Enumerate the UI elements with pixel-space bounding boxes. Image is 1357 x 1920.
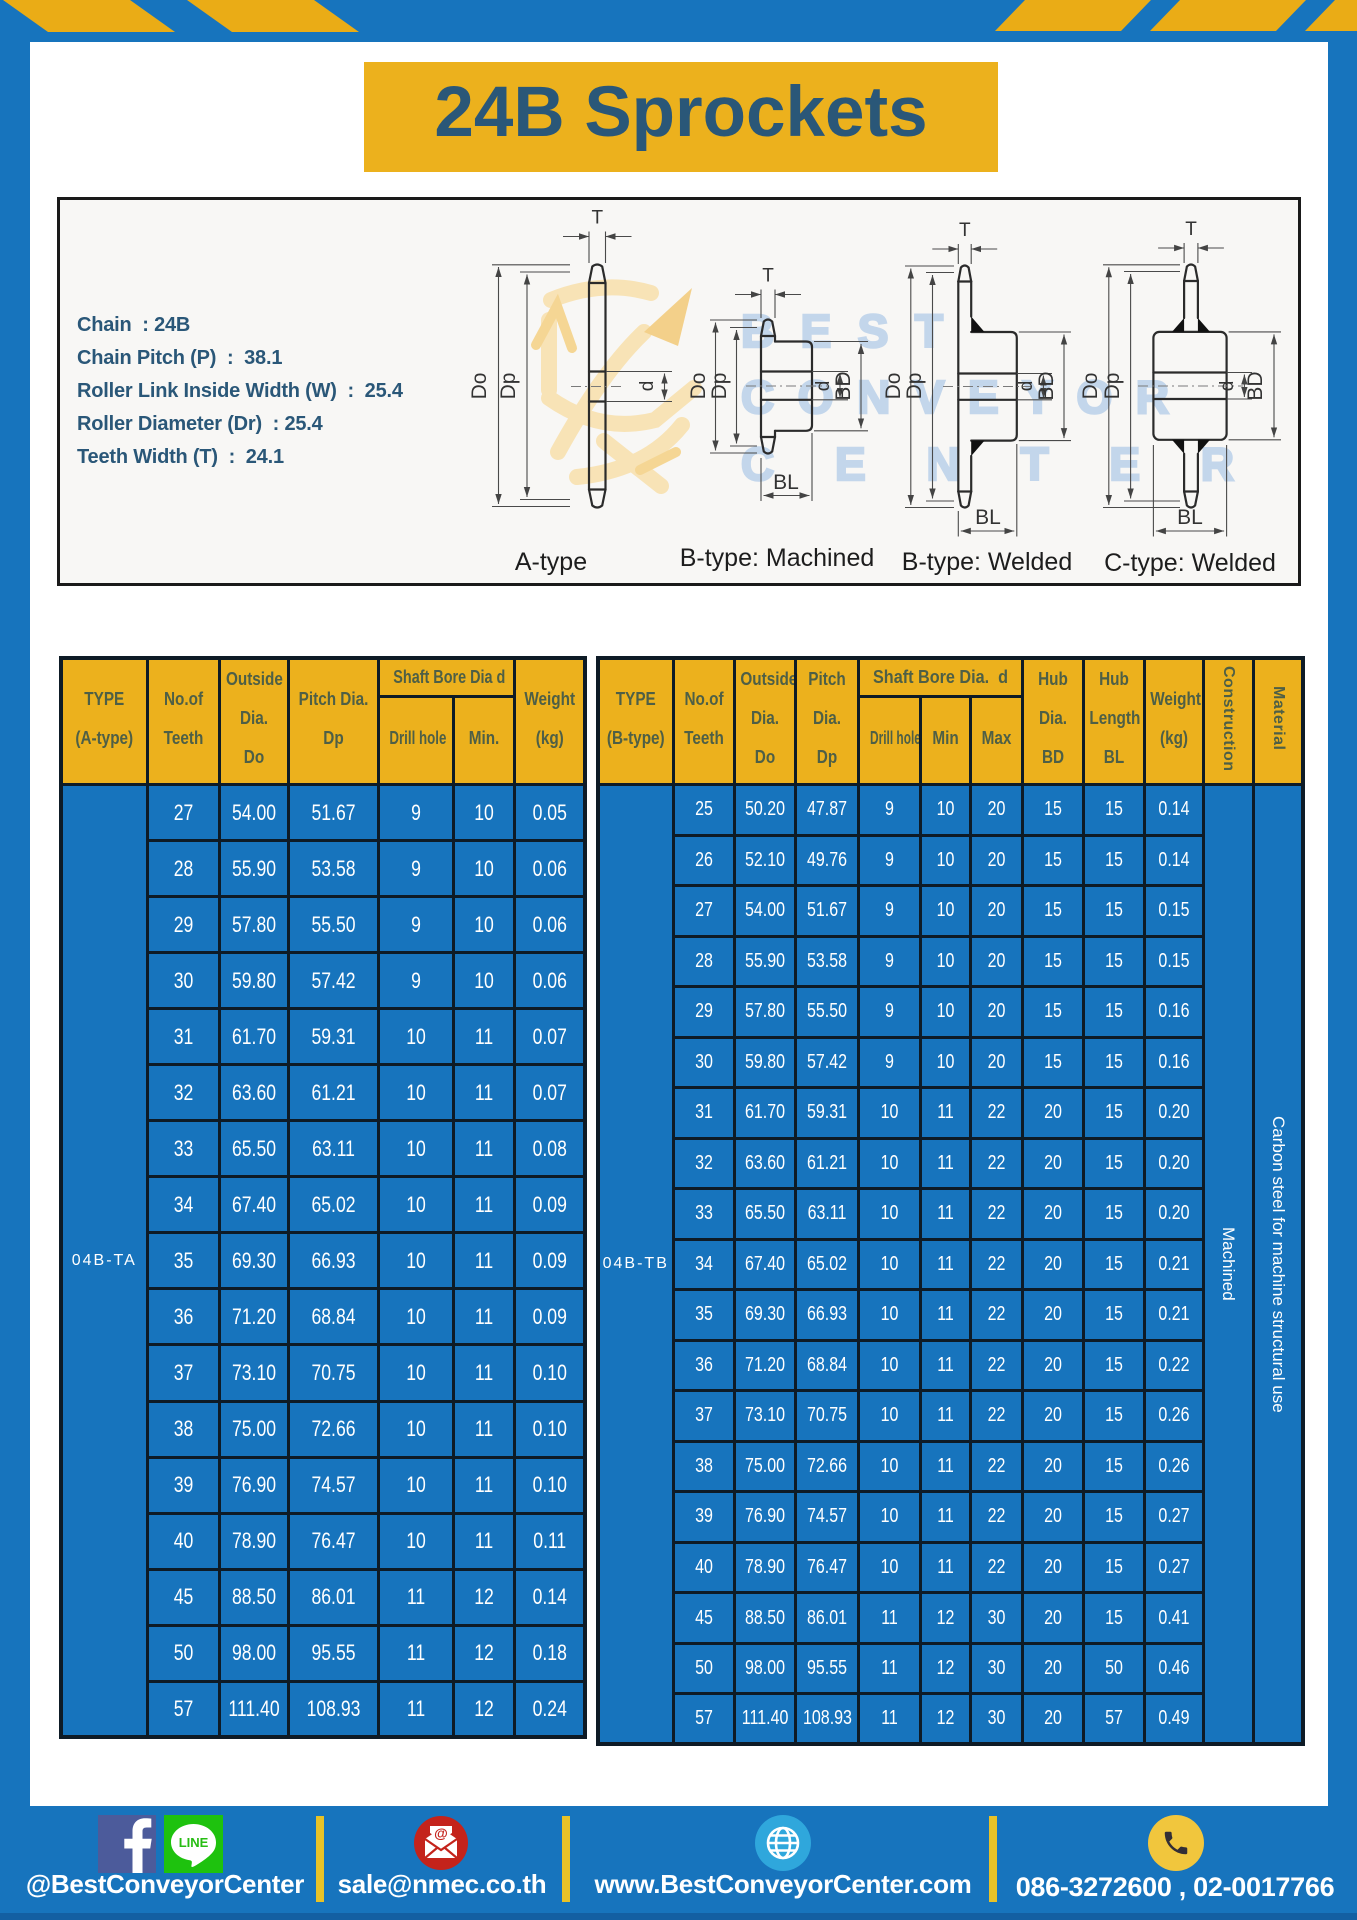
svg-text:LINE: LINE bbox=[179, 1835, 209, 1850]
svg-text:BD: BD bbox=[1244, 371, 1267, 400]
svg-text:d: d bbox=[1016, 381, 1037, 392]
svg-text:T: T bbox=[762, 266, 774, 287]
svg-text:T: T bbox=[959, 220, 971, 241]
svg-text:Dp: Dp bbox=[1101, 373, 1124, 400]
svg-text:T: T bbox=[1185, 219, 1197, 240]
svg-text:CENTER: CENTER bbox=[741, 438, 1246, 490]
svg-text:Do: Do bbox=[1079, 373, 1102, 400]
svg-text:BD: BD bbox=[1035, 371, 1058, 400]
svg-text:T: T bbox=[591, 208, 603, 229]
svg-text:C-type: Welded: C-type: Welded bbox=[1104, 549, 1276, 577]
svg-text:Dp: Dp bbox=[497, 373, 520, 400]
svg-text:Do: Do bbox=[468, 373, 491, 400]
svg-text:d: d bbox=[1217, 381, 1238, 392]
svg-text:Do: Do bbox=[687, 373, 710, 400]
svg-text:Dp: Dp bbox=[903, 373, 926, 400]
svg-text:A-type: A-type bbox=[515, 548, 587, 576]
svg-text:Do: Do bbox=[882, 373, 905, 400]
svg-text:d: d bbox=[637, 381, 658, 392]
svg-text:BL: BL bbox=[975, 506, 1001, 529]
svg-text:BL: BL bbox=[1177, 506, 1203, 529]
svg-text:B-type: Machined: B-type: Machined bbox=[680, 544, 875, 572]
svg-text:@: @ bbox=[434, 1825, 448, 1841]
svg-text:d: d bbox=[813, 381, 834, 392]
svg-text:Dp: Dp bbox=[708, 373, 731, 400]
svg-text:B-type: Welded: B-type: Welded bbox=[902, 548, 1072, 576]
svg-text:BD: BD bbox=[832, 371, 855, 400]
svg-text:BL: BL bbox=[773, 471, 799, 494]
